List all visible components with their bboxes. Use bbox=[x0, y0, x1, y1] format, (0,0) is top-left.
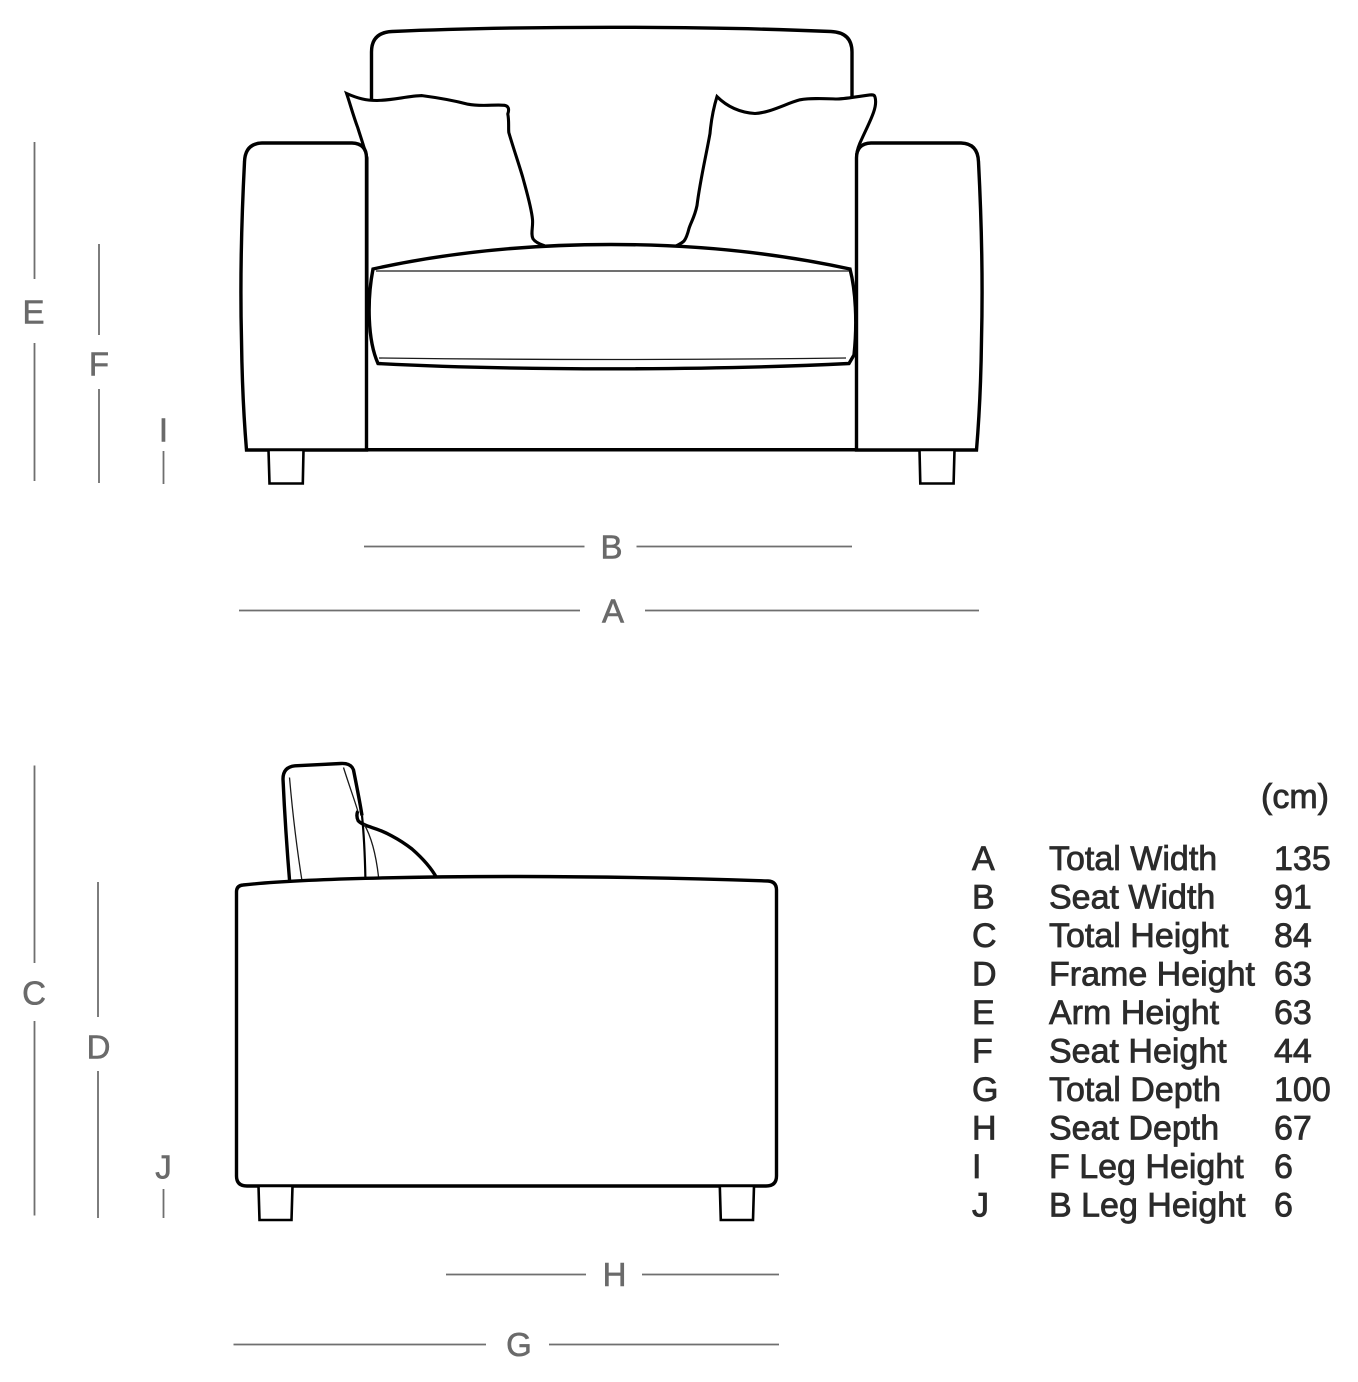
svg-text:D: D bbox=[972, 956, 997, 994]
svg-text:Total Width: Total Width bbox=[1049, 840, 1217, 878]
svg-text:Arm Height: Arm Height bbox=[1049, 994, 1220, 1032]
svg-text:D: D bbox=[87, 1029, 111, 1066]
svg-text:91: 91 bbox=[1274, 879, 1312, 917]
svg-text:63: 63 bbox=[1274, 956, 1312, 994]
svg-text:135: 135 bbox=[1274, 840, 1331, 878]
svg-text:63: 63 bbox=[1274, 994, 1312, 1032]
svg-text:F Leg Height: F Leg Height bbox=[1049, 1148, 1244, 1186]
svg-text:(cm): (cm) bbox=[1261, 778, 1329, 816]
svg-text:Seat Width: Seat Width bbox=[1049, 879, 1215, 917]
svg-text:44: 44 bbox=[1274, 1033, 1312, 1071]
svg-text:84: 84 bbox=[1274, 917, 1312, 955]
svg-text:B Leg Height: B Leg Height bbox=[1049, 1187, 1246, 1225]
svg-text:G: G bbox=[506, 1326, 532, 1363]
svg-text:F: F bbox=[89, 346, 109, 383]
svg-text:Frame Height: Frame Height bbox=[1049, 956, 1256, 994]
svg-text:C: C bbox=[972, 917, 997, 955]
svg-text:J: J bbox=[155, 1149, 172, 1186]
svg-text:Seat Height: Seat Height bbox=[1049, 1033, 1227, 1071]
svg-text:6: 6 bbox=[1274, 1148, 1293, 1186]
svg-text:Total Depth: Total Depth bbox=[1049, 1071, 1221, 1109]
svg-text:A: A bbox=[602, 593, 624, 630]
svg-text:I: I bbox=[159, 412, 168, 449]
svg-text:H: H bbox=[972, 1110, 997, 1148]
svg-text:H: H bbox=[603, 1256, 627, 1293]
svg-text:100: 100 bbox=[1274, 1071, 1331, 1109]
svg-text:6: 6 bbox=[1274, 1187, 1293, 1225]
svg-text:E: E bbox=[972, 994, 995, 1032]
svg-text:I: I bbox=[972, 1148, 981, 1186]
svg-text:F: F bbox=[972, 1033, 993, 1071]
svg-text:B: B bbox=[600, 529, 622, 566]
svg-text:E: E bbox=[22, 294, 44, 331]
svg-text:A: A bbox=[972, 840, 995, 878]
svg-text:Seat Depth: Seat Depth bbox=[1049, 1110, 1219, 1148]
svg-text:Total Height: Total Height bbox=[1049, 917, 1229, 955]
svg-text:G: G bbox=[972, 1071, 998, 1109]
svg-text:B: B bbox=[972, 879, 995, 917]
svg-text:67: 67 bbox=[1274, 1110, 1312, 1148]
svg-text:C: C bbox=[22, 975, 46, 1012]
svg-text:J: J bbox=[972, 1187, 989, 1225]
